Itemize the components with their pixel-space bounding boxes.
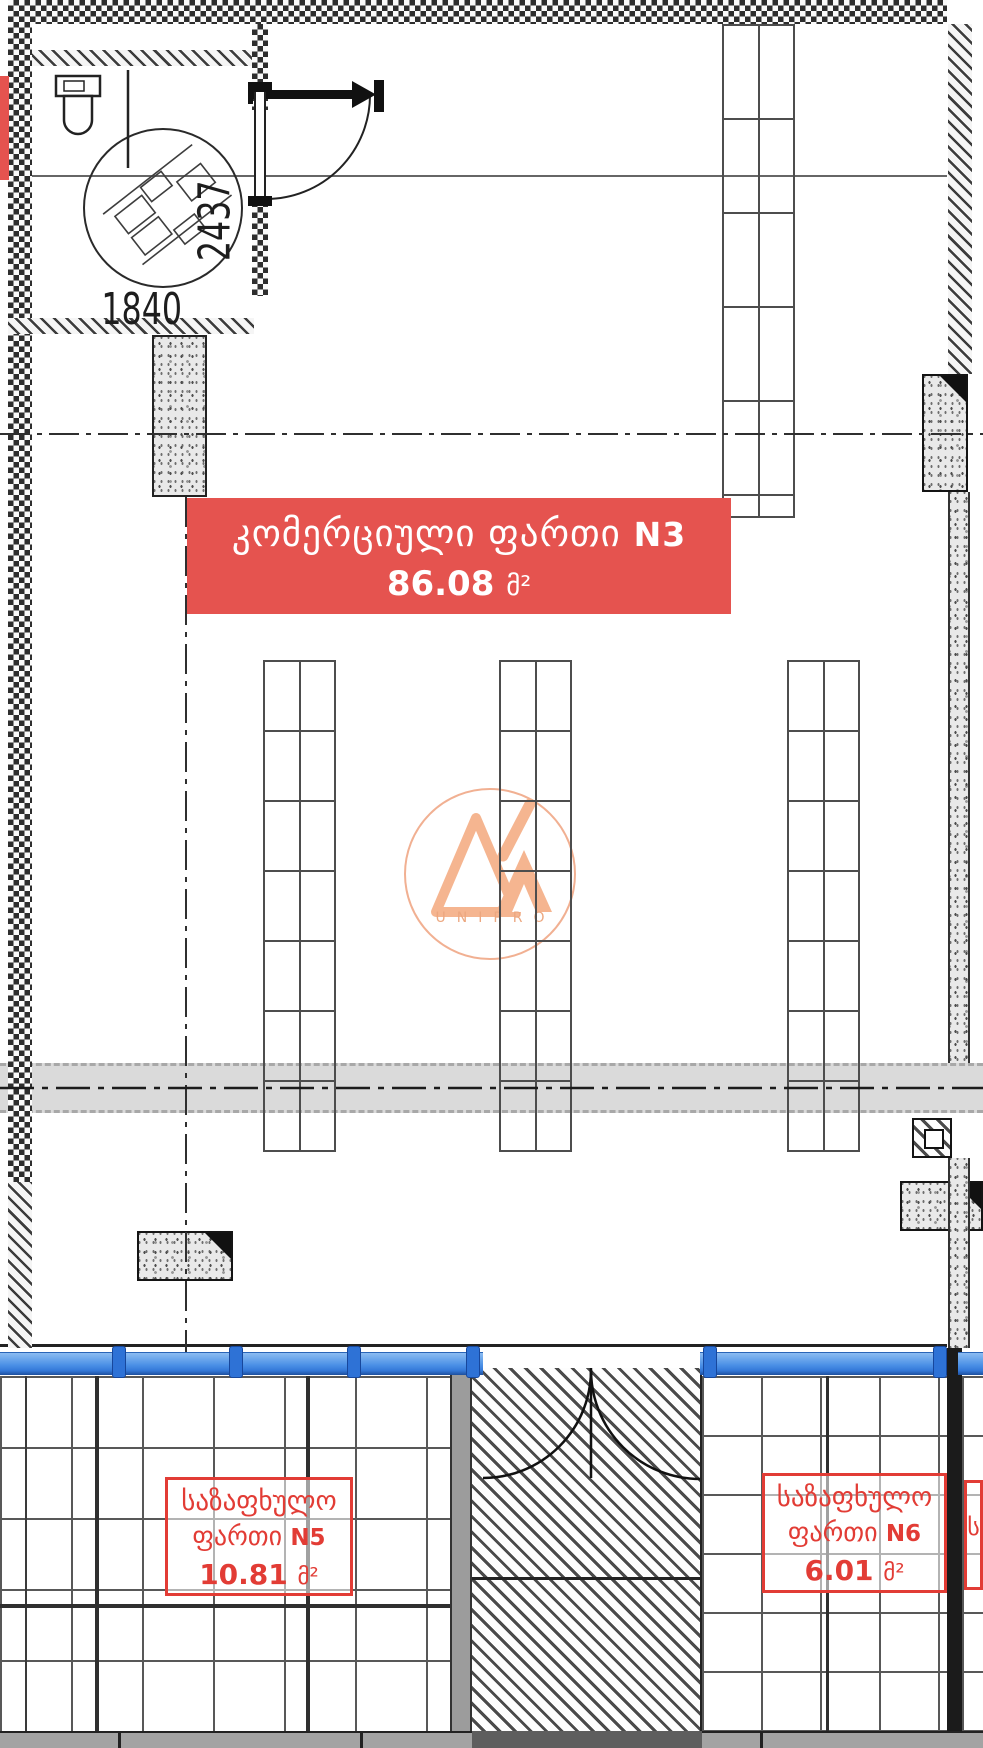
room-n6-line1: საზაფხულო xyxy=(765,1479,944,1516)
window-mullion xyxy=(347,1346,361,1378)
door-leaf xyxy=(254,90,266,198)
terrace-left-wall-line xyxy=(25,1376,27,1731)
left-wall-upper xyxy=(8,0,32,1182)
window-mullion xyxy=(112,1346,126,1378)
toilet-tank-inner xyxy=(64,81,84,91)
banner-unit-number: N3 xyxy=(634,515,687,554)
left-band-block xyxy=(137,1231,233,1281)
right-wall-middle xyxy=(948,492,970,1063)
curb-joint xyxy=(118,1731,121,1748)
room-n5-area: 10.81 მ² xyxy=(168,1556,350,1596)
right-band-block xyxy=(900,1181,983,1231)
left-wall-lower xyxy=(8,1182,32,1348)
room-label-n5: საზაფხულო ფართი N5 10.81 მ² xyxy=(165,1477,353,1596)
column-strip-center xyxy=(499,660,572,1152)
curb-joint xyxy=(760,1731,763,1748)
right-wall-lower xyxy=(948,1158,970,1348)
clipped-label-text: ს xyxy=(967,1509,980,1546)
banner-title: კომერციული ფართი xyxy=(232,512,621,555)
window-band-right xyxy=(700,1352,947,1375)
banner-area-value: 86.08 xyxy=(387,564,495,604)
door-jamb-block xyxy=(374,80,384,112)
floor-plan: 1840 2437 კომერციული ფართი N3 86.08 მ² U… xyxy=(0,0,983,1748)
window-band-far-right xyxy=(958,1352,983,1375)
banner-area-line: 86.08 მ² xyxy=(187,561,731,610)
window-mullion xyxy=(466,1346,480,1378)
column-strip-left xyxy=(263,660,336,1152)
strip-divider xyxy=(535,662,537,1150)
entrance-arrow-head xyxy=(352,81,376,108)
column-strip-right xyxy=(787,660,860,1152)
window-mullion xyxy=(229,1346,243,1378)
axis-column xyxy=(152,335,207,497)
terrace-left-beam-v1 xyxy=(95,1376,99,1731)
right-partition-wall xyxy=(947,1348,962,1748)
room-n5-line2: ფართი N5 xyxy=(168,1520,350,1556)
room-n6-number: N6 xyxy=(886,1521,921,1547)
strip-divider xyxy=(758,26,760,516)
commercial-area-banner: კომერციული ფართი N3 86.08 მ² xyxy=(187,498,731,614)
strip-divider xyxy=(299,662,301,1150)
wc-interior-wall xyxy=(32,50,252,66)
window-mullion xyxy=(933,1346,947,1378)
door-hinge-bottom xyxy=(248,196,272,206)
room-n5-number: N5 xyxy=(290,1525,325,1551)
banner-title-line: კომერციული ფართი N3 xyxy=(187,508,731,561)
room-n5-line1: საზაფხულო xyxy=(168,1483,350,1520)
dimension-2437: 2437 xyxy=(190,182,241,261)
toilet-tank xyxy=(56,76,100,96)
wc-door-swing-arc xyxy=(266,95,370,199)
door-side-wall-left xyxy=(450,1368,472,1748)
banner-area-unit: მ² xyxy=(506,571,531,602)
room-label-n6: საზაფხულო ფართი N6 6.01 მ² xyxy=(762,1473,947,1593)
column-strip-top xyxy=(722,24,795,518)
top-wall xyxy=(8,0,947,24)
bottom-curb-dark xyxy=(472,1731,702,1748)
room-n6-line2: ფართი N6 xyxy=(765,1516,944,1552)
dimension-1840: 1840 xyxy=(101,284,180,335)
shaft-opening xyxy=(924,1129,944,1149)
strip-divider xyxy=(823,662,825,1150)
door-hinge-top xyxy=(248,82,272,92)
entrance-threshold xyxy=(472,1577,702,1580)
toilet-bowl xyxy=(64,96,92,134)
right-shaft-block xyxy=(912,1118,952,1158)
edge-label-fragment-left xyxy=(0,76,9,180)
terrace-left-beam-h xyxy=(0,1604,450,1608)
window-mullion xyxy=(703,1346,717,1378)
right-column-block xyxy=(922,374,968,492)
curb-joint xyxy=(360,1731,363,1748)
room-label-clipped: ს xyxy=(964,1480,983,1590)
right-wall-upper xyxy=(948,24,972,374)
wc-right-wall-lower xyxy=(252,196,268,296)
room-n6-area: 6.01 მ² xyxy=(765,1552,944,1592)
entrance-ramp xyxy=(472,1368,702,1748)
